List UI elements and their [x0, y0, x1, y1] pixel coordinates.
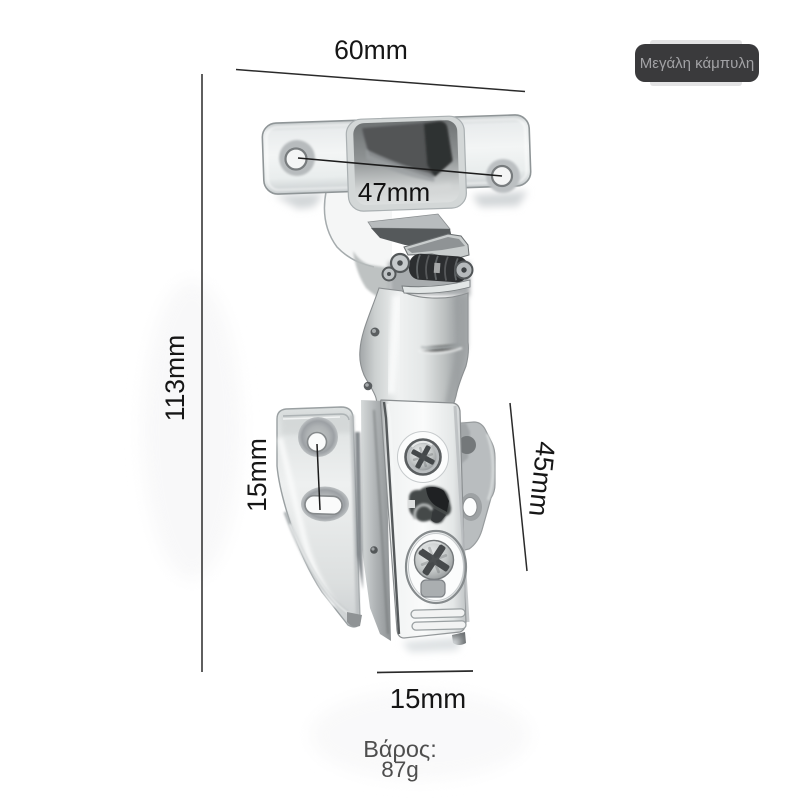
- svg-text:Μεγάλη κάμπυλη: Μεγάλη κάμπυλη: [640, 55, 754, 72]
- svg-text:15mm: 15mm: [242, 438, 272, 512]
- svg-text:15mm: 15mm: [390, 683, 466, 714]
- svg-text:47mm: 47mm: [358, 177, 430, 207]
- svg-text:87g: 87g: [381, 757, 419, 782]
- svg-text:113mm: 113mm: [160, 335, 190, 421]
- svg-text:60mm: 60mm: [334, 35, 408, 65]
